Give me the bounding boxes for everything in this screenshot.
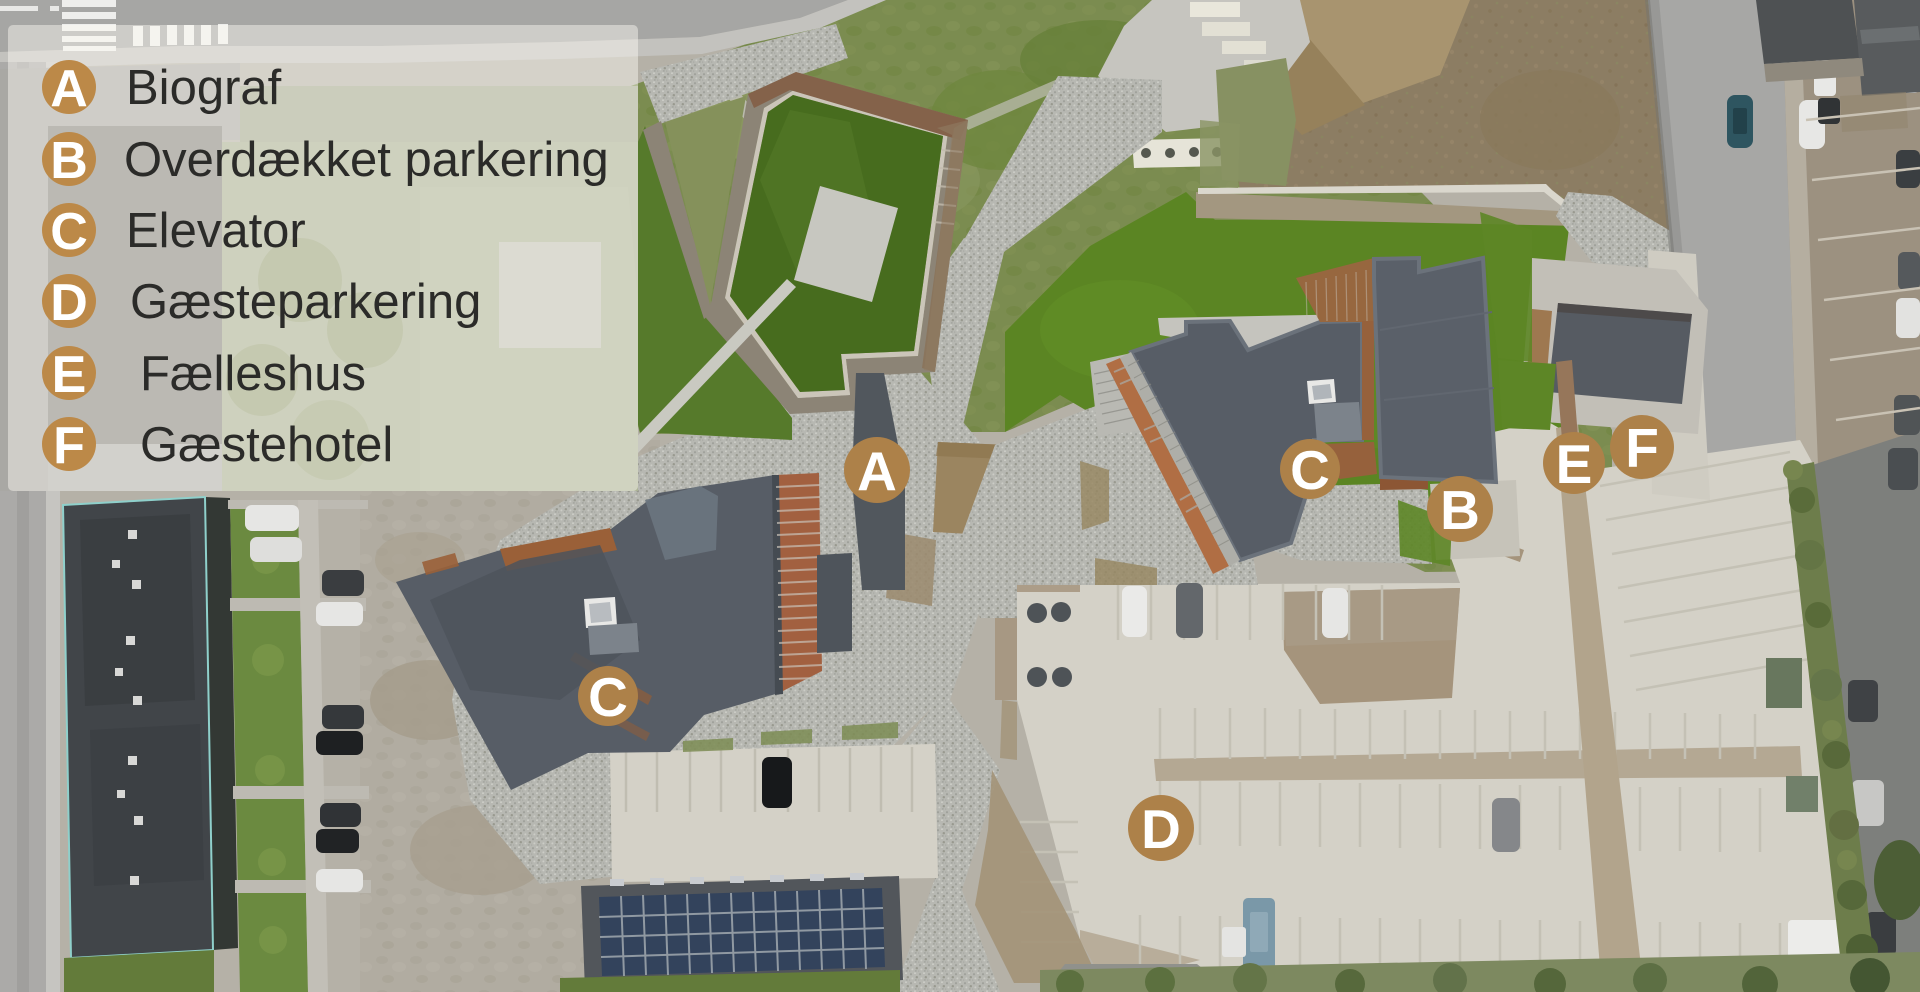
svg-text:C: C — [1290, 439, 1330, 501]
svg-text:Elevator: Elevator — [126, 204, 306, 258]
svg-text:B: B — [50, 132, 88, 190]
svg-text:B: B — [1440, 479, 1480, 541]
svg-text:C: C — [50, 203, 88, 261]
svg-text:E: E — [52, 346, 87, 404]
svg-text:D: D — [50, 274, 88, 332]
svg-text:Overdækket parkering: Overdækket parkering — [124, 133, 609, 187]
svg-text:C: C — [588, 666, 628, 728]
svg-text:F: F — [53, 417, 85, 475]
svg-text:E: E — [1556, 433, 1593, 495]
svg-text:Gæstehotel: Gæstehotel — [140, 418, 393, 472]
svg-text:Gæsteparkering: Gæsteparkering — [130, 275, 481, 329]
svg-text:D: D — [1141, 798, 1181, 860]
svg-text:Biograf: Biograf — [126, 61, 282, 115]
svg-text:Fælleshus: Fælleshus — [140, 347, 366, 401]
svg-text:A: A — [857, 440, 897, 502]
svg-text:F: F — [1625, 417, 1659, 479]
svg-text:A: A — [50, 60, 88, 118]
